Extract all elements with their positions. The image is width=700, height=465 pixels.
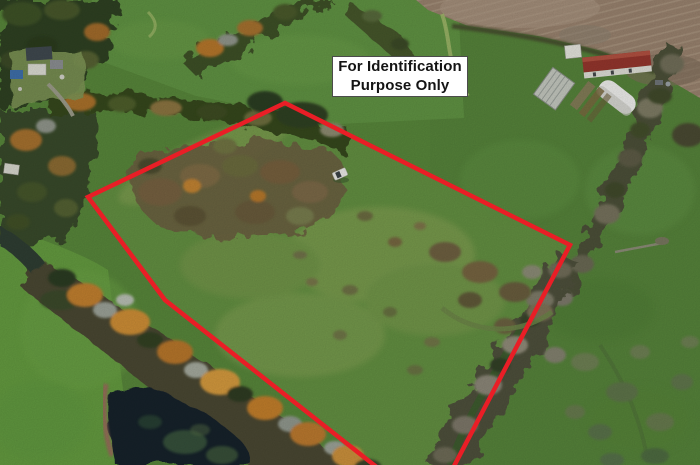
identification-label-line1: For Identification [338, 58, 461, 77]
aerial-photo: For Identification Purpose Only [0, 0, 700, 465]
identification-label: For Identification Purpose Only [332, 56, 468, 97]
identification-label-line2: Purpose Only [351, 77, 450, 96]
